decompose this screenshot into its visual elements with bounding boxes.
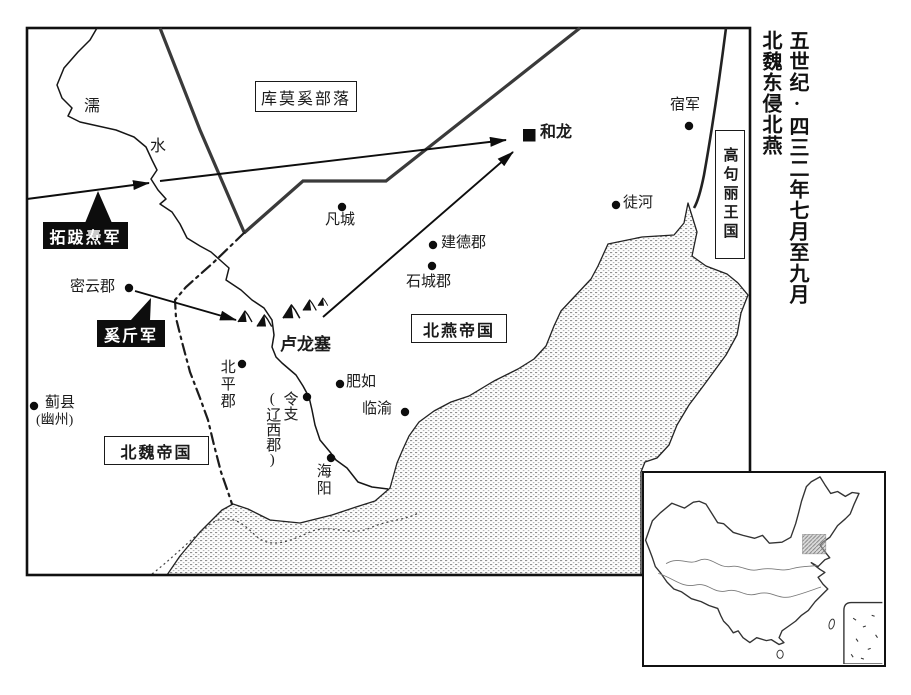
miyun-dot (125, 284, 133, 292)
lingzhi-dot (303, 393, 311, 401)
mountain-icon (303, 300, 316, 310)
army-label-tuoba: 拓跋焘军 (49, 224, 121, 248)
place-label-lulong: 卢龙塞 (280, 336, 331, 354)
sujun-dot (685, 122, 693, 130)
river-label-ru: 濡 (84, 99, 100, 116)
border-kumoxi-west (160, 28, 244, 232)
place-label-jixian: 蓟县 (45, 396, 75, 412)
south-china-sea-box (844, 603, 882, 664)
region-box-gaogouli: 高句丽王国 (715, 130, 745, 259)
fancheng-dot (338, 203, 346, 211)
place-label-shicheng: 石城郡 (406, 275, 451, 291)
place-label-haiyang: 海阳 (314, 463, 330, 497)
place-label-tuhe: 徒河 (623, 196, 653, 212)
region-label-beiyan: 北燕帝国 (423, 317, 495, 341)
feiru-dot (336, 380, 344, 388)
jiande-dot (429, 241, 437, 249)
place-label-miyun: 密云郡 (70, 280, 115, 296)
river-label-shui: 水 (150, 139, 166, 156)
place-label-jiande: 建德郡 (441, 236, 486, 252)
xijin-callout-tail (130, 298, 151, 321)
mountain-icon (318, 298, 328, 306)
tuoba-callout-tail (85, 191, 112, 223)
place-label-sujun: 宿军 (670, 98, 700, 114)
mountain-icon (238, 311, 252, 322)
region-label-kumoxi: 库莫奚部落 (261, 85, 351, 109)
arrow-tuoba-west (27, 183, 149, 199)
army-box-tuoba: 拓跋焘军 (43, 222, 128, 249)
place-label-youzhou: (幽州) (36, 414, 73, 429)
china-outline-canvas (644, 473, 883, 664)
place-label-helong: 和龙 (540, 125, 572, 142)
place-label-liaoxi: (辽西郡) (263, 391, 280, 468)
region-label-beiwei: 北魏帝国 (120, 439, 192, 463)
hainan-island (777, 650, 783, 658)
shicheng-dot (428, 262, 436, 270)
place-label-fancheng: 凡城 (325, 213, 355, 229)
place-label-lingzhi-group: 令支 (辽西郡) (263, 391, 298, 468)
china-locator-inset (642, 471, 886, 667)
region-box-kumoxi: 库莫奚部落 (255, 81, 357, 112)
map-location-highlight (802, 534, 825, 553)
place-label-lingzhi: 令支 (280, 391, 297, 468)
army-box-xijin: 奚斤军 (97, 320, 165, 347)
place-label-linyu: 临渝 (362, 402, 392, 418)
place-label-feiru: 肥如 (346, 375, 376, 391)
linyu-dot (401, 408, 409, 416)
haiyang-dot (327, 454, 335, 462)
helong-capital-marker (523, 129, 536, 142)
mountain-icon (283, 305, 300, 318)
place-label-beiping: 北平郡 (218, 359, 234, 410)
historical-map-page: 濡 水 和龙 宿军 徒河 凡城 建德郡 石城郡 密云郡 卢龙塞 肥如 临渝 蓟县… (0, 0, 911, 695)
region-box-beiwei: 北魏帝国 (104, 436, 209, 465)
tuhe-dot (612, 201, 620, 209)
jixian-dot (30, 402, 38, 410)
region-box-beiyan: 北燕帝国 (411, 314, 507, 343)
army-label-xijin: 奚斤军 (104, 322, 158, 346)
region-label-gaogouli: 高句丽王国 (720, 147, 741, 242)
beiping-dot (238, 360, 246, 368)
taiwan-island (828, 619, 835, 630)
